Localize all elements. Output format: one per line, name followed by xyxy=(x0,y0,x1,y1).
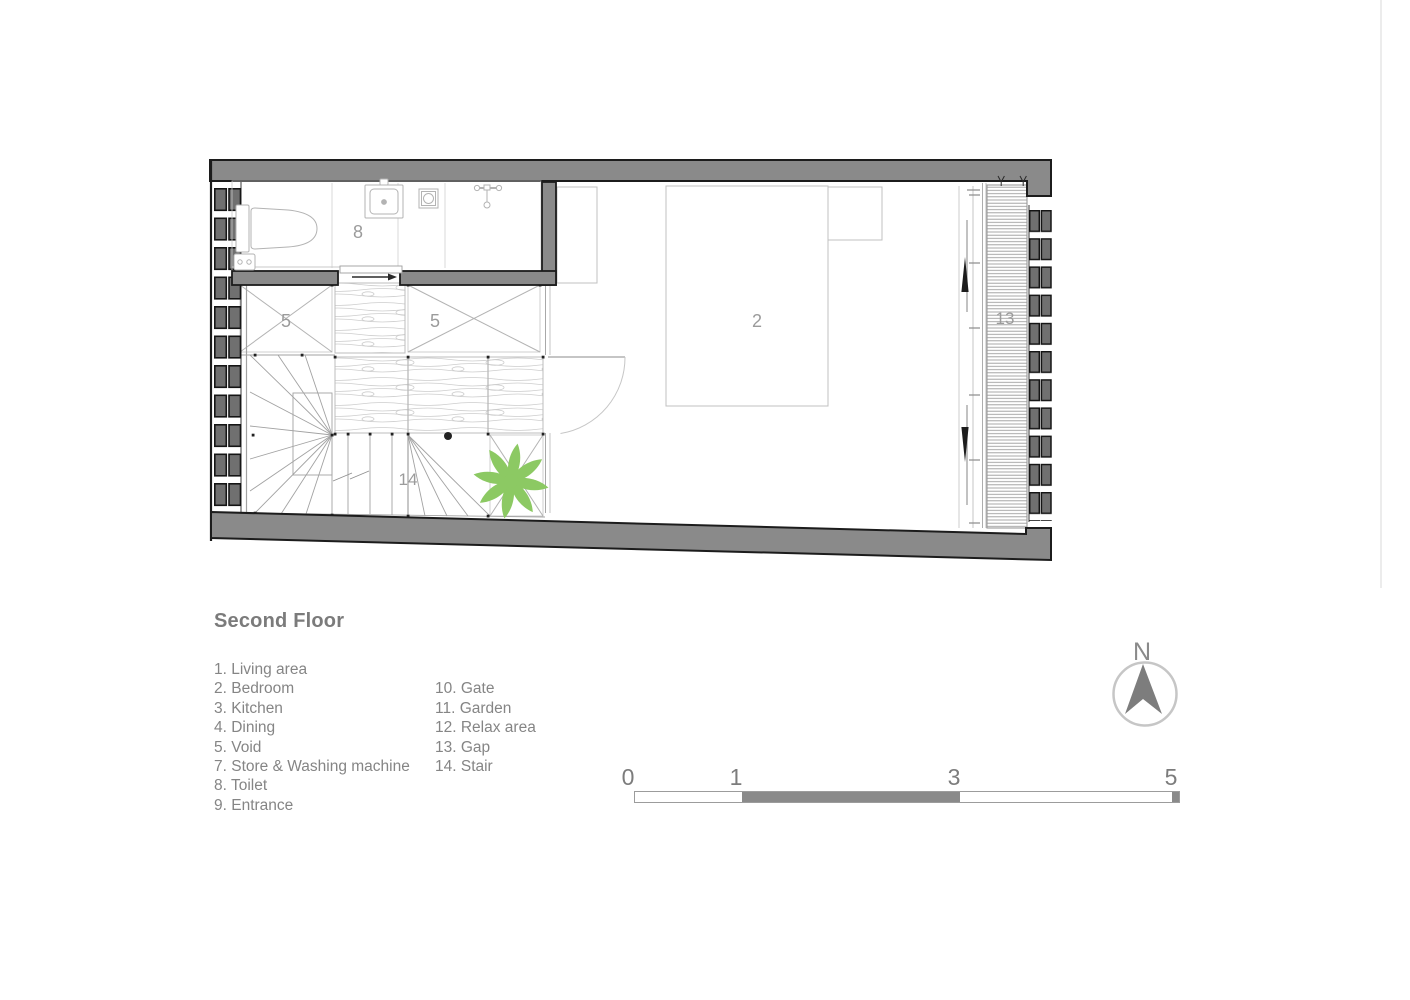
sliding-door-panel xyxy=(340,266,402,273)
room-label-stair: 14 xyxy=(399,470,418,489)
legend-item: 12. Relax area xyxy=(435,718,595,737)
toilet-fixtures xyxy=(234,179,502,270)
scale-bar-track xyxy=(634,791,1180,803)
floor-plan: 8 5 5 2 13 14 N xyxy=(0,0,1410,1000)
page: 8 5 5 2 13 14 N Second Floor 1. Living a… xyxy=(0,0,1410,1000)
room-label-bedroom: 2 xyxy=(752,311,762,331)
scale-bar-labels: 0 1 3 5 xyxy=(634,764,1180,789)
sink-faucet xyxy=(380,179,388,185)
scale-tick-label: 0 xyxy=(622,764,635,791)
closet xyxy=(557,187,597,283)
legend-column-1: 1. Living area 2. Bedroom 3. Kitchen 4. … xyxy=(214,660,444,815)
newel-dot xyxy=(444,432,452,440)
toilet-wall-bottom-left xyxy=(232,271,338,285)
legend-item: 11. Garden xyxy=(435,699,595,718)
room-label-gap: 13 xyxy=(996,309,1015,328)
shower-mixer xyxy=(484,185,490,190)
door-direction-arrow-icon xyxy=(388,274,397,281)
legend-column-2: 10. Gate 11. Garden 12. Relax area 13. G… xyxy=(435,679,595,776)
bed xyxy=(666,186,828,406)
page-title: Second Floor xyxy=(214,610,344,633)
legend: Second Floor 1. Living area 2. Bedroom 3… xyxy=(214,610,344,660)
legend-item: 8. Toilet xyxy=(214,776,444,795)
legend-item: 7. Store & Washing machine xyxy=(214,757,444,776)
legend-item: 5. Void xyxy=(214,738,444,757)
scale-tick-label: 3 xyxy=(948,764,961,791)
hall-bedroom-partition xyxy=(546,285,626,513)
legend-item: 1. Living area xyxy=(214,660,444,679)
bedroom-furniture xyxy=(557,186,882,406)
gap-louvers xyxy=(987,185,1027,528)
legend-item: 2. Bedroom xyxy=(214,679,444,698)
wood-floor-areas xyxy=(335,283,543,433)
north-arrow: N xyxy=(1114,638,1177,726)
scale-tick-label: 1 xyxy=(730,764,743,791)
scale-segment-filled xyxy=(742,792,960,802)
scale-tick-label: 5 xyxy=(1165,764,1178,791)
sliding-track xyxy=(959,183,986,528)
legend-item: 13. Gap xyxy=(435,738,595,757)
room-label-toilet: 8 xyxy=(353,222,363,242)
shower-head xyxy=(484,202,490,208)
room-label-void-right: 5 xyxy=(430,311,440,331)
legend-item: 9. Entrance xyxy=(214,796,444,815)
north-pointer-icon xyxy=(1125,664,1162,714)
north-label: N xyxy=(1133,638,1151,666)
legend-item: 10. Gate xyxy=(435,679,595,698)
toilet-wall-right xyxy=(542,182,556,285)
toilet-wall-bottom-right xyxy=(400,271,556,285)
legend-item: 3. Kitchen xyxy=(214,699,444,718)
wood-strip-upper xyxy=(335,283,405,353)
door-swing-arc xyxy=(561,357,626,434)
wood-band-landing xyxy=(335,357,543,433)
legend-item: 4. Dining xyxy=(214,718,444,737)
wall-top xyxy=(210,160,1051,196)
side-table xyxy=(828,187,882,240)
room-label-void-left: 5 xyxy=(281,311,291,331)
brick-column-right xyxy=(1029,210,1052,521)
toilet-tank xyxy=(236,205,249,252)
scale-bar: 0 1 3 5 xyxy=(634,764,1180,806)
legend-item: 14. Stair xyxy=(435,757,595,776)
small-basin xyxy=(234,254,255,270)
wall-bottom xyxy=(211,512,1051,560)
scale-segment-cap xyxy=(1172,792,1179,802)
toilet-bowl xyxy=(251,208,317,249)
